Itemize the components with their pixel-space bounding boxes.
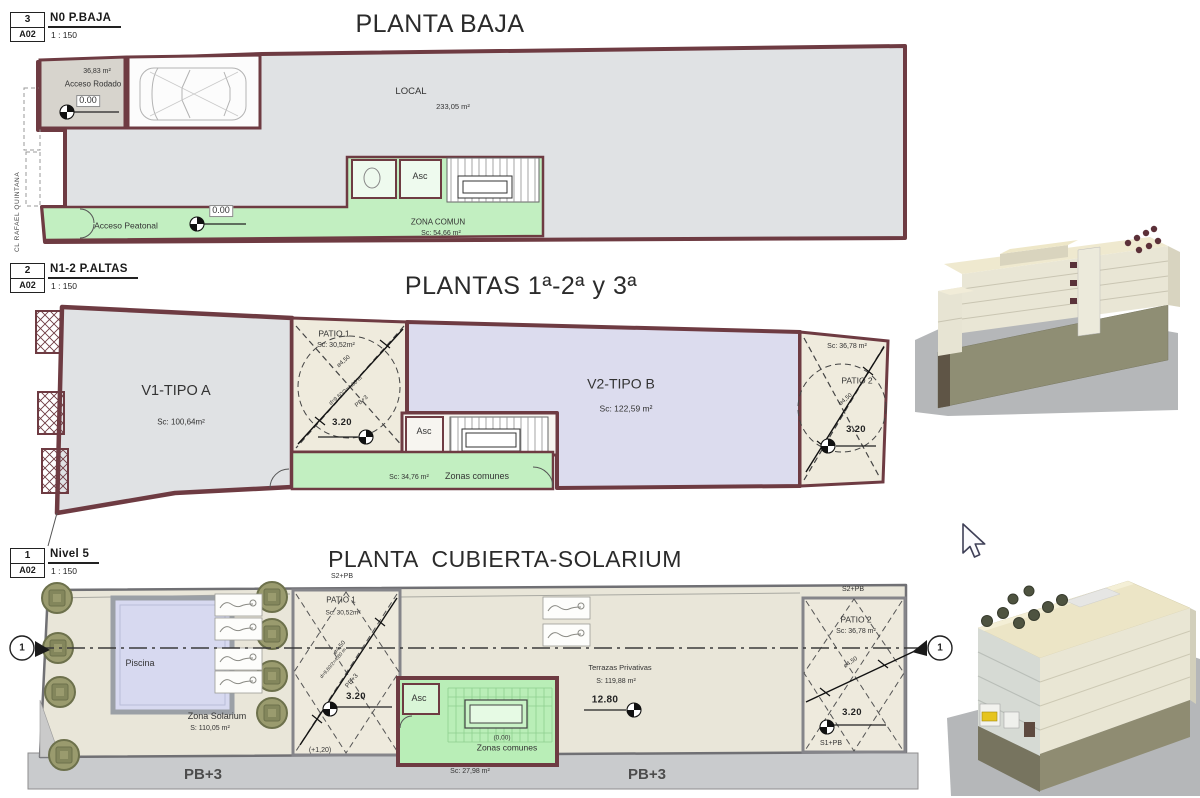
patio2-label-altas: PATIO 2 bbox=[841, 376, 872, 385]
view-scale: 1 : 150 bbox=[48, 28, 121, 40]
plus-120-label: (+1,20) bbox=[309, 747, 331, 755]
level-1280: 12.80 bbox=[592, 695, 619, 706]
s2pb-left-label: S2+PB bbox=[331, 573, 353, 581]
view-number: 1 bbox=[11, 549, 44, 564]
v2-area: Sc: 122,59 m² bbox=[600, 404, 653, 413]
acceso-peatonal-label: Acceso Peatonal bbox=[94, 221, 158, 230]
drawing-sheet: 3 A02 N0 P.BAJA 1 : 150 2 A02 N1-2 P.ALT… bbox=[0, 0, 1200, 798]
view-number: 3 bbox=[11, 13, 44, 28]
patio1-area-cubierta: Sc: 30,52m² bbox=[325, 609, 360, 616]
zona-solarium-area: S: 110,05 m² bbox=[190, 725, 230, 733]
level-patio1-altas: 3.20 bbox=[332, 418, 352, 428]
patio2-label-cubierta: PATIO 2 bbox=[840, 615, 871, 624]
level-patio1-cubierta: 3.20 bbox=[346, 692, 366, 702]
titleblock-baja: 3 A02 N0 P.BAJA 1 : 150 bbox=[10, 12, 121, 42]
zona-comun-area: Sc: 54,66 m² bbox=[421, 230, 461, 238]
zc-level-cubierta: (0,00) bbox=[494, 734, 511, 741]
local-area: 233,05 m² bbox=[436, 103, 470, 111]
v2-tipo-b-label: V2-TIPO B bbox=[587, 376, 655, 391]
asc-label-altas: Asc bbox=[416, 427, 431, 437]
v1-tipo-a-label: V1-TIPO A bbox=[141, 384, 210, 400]
view-name: Nivel 5 bbox=[48, 548, 99, 564]
view-number: 2 bbox=[11, 264, 44, 279]
zonas-comunes-area-altas: Sc: 34,76 m² bbox=[389, 474, 429, 482]
level-patio2-cubierta: 3.20 bbox=[842, 708, 862, 718]
section-marker-right: 1 bbox=[937, 643, 943, 654]
view-scale: 1 : 150 bbox=[48, 279, 138, 291]
sheet-number: A02 bbox=[11, 28, 44, 41]
patio2-area-altas: Sc: 36,78 m² bbox=[827, 343, 867, 351]
patio2-area-cubierta: Sc: 36,78 m² bbox=[836, 628, 876, 636]
terrazas-label: Terrazas Privativas bbox=[588, 664, 651, 672]
level-patio2-altas: 3.20 bbox=[846, 425, 866, 435]
sheet-number: A02 bbox=[11, 564, 44, 577]
v1-area: Sc: 100,64m² bbox=[157, 419, 205, 428]
level-garage: 0.00 bbox=[76, 95, 100, 107]
patio1-label-cubierta: PATIO 1 bbox=[326, 597, 356, 606]
level-corridor: 0.00 bbox=[209, 205, 233, 217]
sheet-number: A02 bbox=[11, 279, 44, 292]
zona-comun-label: ZONA COMUN bbox=[411, 219, 465, 228]
mouse-cursor bbox=[963, 524, 985, 557]
s2pb-right-label: S2+PB bbox=[842, 586, 864, 594]
render-3d-bottom bbox=[947, 581, 1200, 796]
acceso-rodado-area: 36,83 m² bbox=[83, 68, 111, 76]
piscina-label: Piscina bbox=[125, 659, 154, 669]
title-planta-cubierta: PLANTA CUBIERTA-SOLARIUM bbox=[328, 546, 682, 573]
view-name: N0 P.BAJA bbox=[48, 12, 121, 28]
render-3d-top bbox=[915, 226, 1180, 416]
patio1-label: PATIO 1 bbox=[318, 329, 349, 338]
view-scale: 1 : 150 bbox=[48, 564, 99, 576]
title-planta-baja: PLANTA BAJA bbox=[356, 10, 525, 39]
zonas-comunes-label-cubierta: Zonas comunes bbox=[477, 743, 537, 752]
street-label: CL RAFAEL QUINTANA bbox=[14, 120, 21, 252]
acceso-rodado-label: Acceso Rodado bbox=[65, 81, 121, 90]
section-marker-left: 1 bbox=[19, 643, 25, 654]
planta-baja-geometry bbox=[24, 46, 905, 242]
patio1-area: Sc: 30,52m² bbox=[317, 342, 355, 350]
asc-label-cubierta: Asc bbox=[411, 694, 426, 704]
local-label: LOCAL bbox=[395, 87, 426, 97]
pb3-left-label: PB+3 bbox=[184, 767, 222, 784]
zc-area-cubierta: Sc: 27,98 m² bbox=[450, 768, 490, 776]
zona-solarium-label: Zona Solarium bbox=[188, 712, 247, 722]
terrazas-area: S: 119,88 m² bbox=[596, 678, 636, 686]
titleblock-cubierta: 1 A02 Nivel 5 1 : 150 bbox=[10, 548, 99, 578]
asc-label-baja: Asc bbox=[412, 172, 427, 182]
zonas-comunes-label-altas: Zonas comunes bbox=[445, 472, 509, 482]
planta-cubierta-geometry bbox=[10, 582, 952, 789]
pb3-right-label: PB+3 bbox=[628, 767, 666, 784]
view-name: N1-2 P.ALTAS bbox=[48, 263, 138, 279]
s1pb-label: S1+PB bbox=[820, 740, 842, 748]
title-plantas-altas: PLANTAS 1ª-2ª y 3ª bbox=[405, 272, 637, 301]
titleblock-altas: 2 A02 N1-2 P.ALTAS 1 : 150 bbox=[10, 263, 138, 293]
